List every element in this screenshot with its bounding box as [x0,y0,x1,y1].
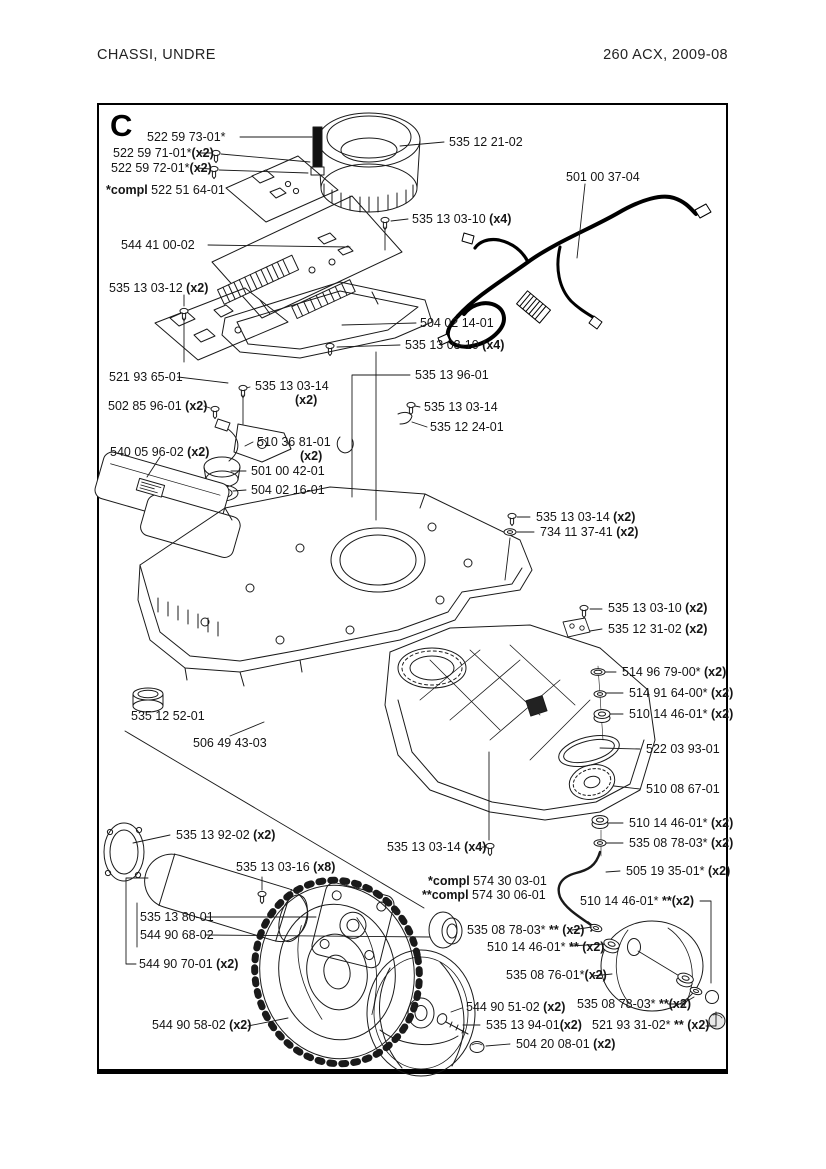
part-label: 535 12 52-01 [131,710,205,723]
part-label: *compl 522 51 64-01 [106,184,225,197]
part-label: 514 91 64-00* (x2) [629,687,733,700]
part-label: 510 14 46-01* (x2) [629,817,733,830]
exploded-view-art [0,0,826,1169]
part-label: 544 90 68-02 [140,929,214,942]
part-label: 510 14 46-01* **(x2) [580,895,694,908]
part-label: 514 96 79-00* (x2) [622,666,726,679]
part-label: 504 02 16-01 [251,484,325,497]
part-label: 544 90 58-02 (x2) [152,1019,251,1032]
part-label: 505 19 35-01* (x2) [626,865,730,878]
part-label: 535 13 03-14 [255,380,329,393]
part-label: 535 12 31-02 (x2) [608,623,707,636]
part-label: 535 13 03-10 (x2) [608,602,707,615]
part-label: 504 20 08-01 (x2) [516,1038,615,1051]
part-label: 535 08 78-03* ** (x2) [467,924,584,937]
catalog-page: CHASSI, UNDRE 260 ACX, 2009-08 C [0,0,826,1169]
part-label: 522 59 71-01*(x2) [113,147,214,160]
part-label: 535 13 03-10 (x4) [412,213,511,226]
part-label: *compl 574 30 03-01 [428,875,547,888]
part-label: 540 05 96-02 (x2) [110,446,209,459]
part-label: 501 00 42-01 [251,465,325,478]
fan-drum [318,113,420,212]
transmission-body [385,625,655,820]
part-label: 535 13 80-01 [140,911,214,924]
part-label: 506 49 43-03 [193,737,267,750]
part-label: 521 93 31-02* ** (x2) [592,1019,709,1032]
part-label: 535 13 03-12 (x2) [109,282,208,295]
part-label: 510 14 46-01* (x2) [629,708,733,721]
part-label: 522 03 93-01 [646,743,720,756]
part-label: 502 85 96-01 (x2) [108,400,207,413]
part-label: 510 08 67-01 [646,783,720,796]
part-label: 501 00 37-04 [566,171,640,184]
part-label: 734 11 37-41 (x2) [540,526,638,539]
part-label: 535 13 03-14 (x4) [387,841,486,854]
part-label: 522 59 73-01* [147,131,226,144]
part-label: 535 13 96-01 [415,369,489,382]
part-label: 535 13 92-02 (x2) [176,829,275,842]
part-label: 535 08 78-03* **(x2) [577,998,691,1011]
part-label: 535 12 24-01 [430,421,504,434]
part-label: 535 13 03-16 (x8) [236,861,335,874]
part-label: 535 13 03-14 [424,401,498,414]
part-label: 535 13 03-14 (x2) [536,511,635,524]
part-label: 535 12 21-02 [449,136,523,149]
part-label: 535 13 94-01(x2) [486,1019,582,1032]
part-label: 535 13 03-10 (x4) [405,339,504,352]
part-label: (x2) [300,450,322,463]
part-label: 510 36 81-01 [257,436,331,449]
part-label: 522 59 72-01*(x2) [111,162,212,175]
part-label: 510 14 46-01* ** (x2) [487,941,604,954]
part-label: **compl 574 30 06-01 [422,889,546,902]
part-label: (x2) [295,394,317,407]
part-label: 544 41 00-02 [121,239,195,252]
part-label: 544 90 51-02 (x2) [466,1001,565,1014]
part-label: 521 93 65-01 [109,371,183,384]
battery [87,450,251,560]
part-label: 544 90 70-01 (x2) [139,958,238,971]
part-label: 535 08 78-03* (x2) [629,837,733,850]
gasket [104,823,144,881]
part-label: 504 02 14-01 [420,317,494,330]
part-label: 535 08 76-01*(x2) [506,969,607,982]
